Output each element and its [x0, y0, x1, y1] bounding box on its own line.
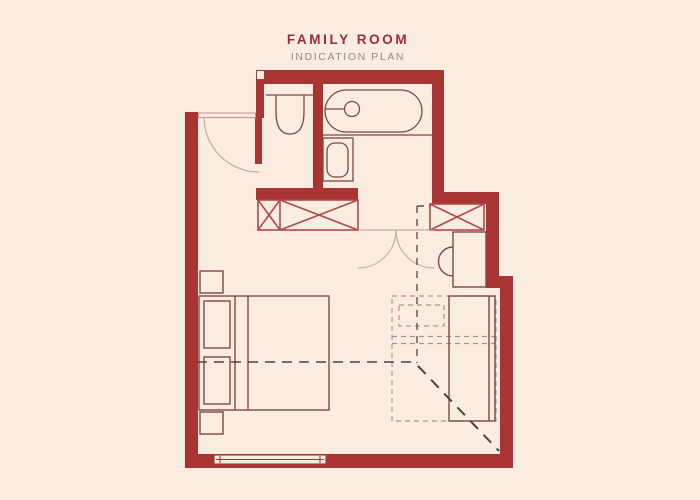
wc-west-wall: [256, 84, 264, 118]
walls: [185, 70, 513, 468]
right-wall-middle: [486, 192, 499, 288]
wardrobe-left: [258, 200, 358, 230]
window: [214, 455, 326, 464]
step-wall-upper: [432, 192, 495, 204]
sofa-bed: [449, 296, 495, 421]
pillow-top: [204, 301, 230, 348]
entry-door: [199, 113, 263, 172]
wardrobe-right: [430, 204, 484, 230]
wc-room-fixtures: [266, 95, 313, 134]
wardrobe-left-outline: [258, 200, 358, 230]
entry-door-leaf: [255, 118, 262, 164]
bed-frame: [199, 296, 329, 410]
top-wall-notch: [257, 71, 264, 79]
nightstand-bottom: [200, 412, 223, 434]
floor-plan-canvas: FAMILY ROOM INDICATION PLAN: [0, 0, 700, 500]
desk-chair-icon: [439, 247, 454, 276]
right-wall-upper: [432, 70, 444, 204]
wc-east-wall: [313, 84, 323, 190]
desk: [453, 232, 486, 287]
double-door-right-arc: [396, 230, 434, 268]
top-wall: [256, 70, 444, 84]
wardrobe-right-x: [430, 204, 484, 230]
double-door-left-arc: [358, 230, 396, 268]
toilet-icon: [276, 95, 304, 134]
bathtub-drain-icon: [345, 102, 360, 117]
double-doors: [358, 230, 434, 268]
wardrobe-left-x-large: [280, 200, 358, 230]
foldout-pillow-dashed: [399, 305, 444, 326]
bathtub-room-fixtures: [323, 90, 432, 181]
pillow-bottom: [204, 357, 230, 404]
sofa-bed-group: [392, 296, 496, 421]
right-wall-lower: [500, 276, 513, 468]
foldout-direction-diagonal: [418, 366, 499, 451]
bathroom-south-wall: [256, 188, 358, 200]
wardrobe-left-x-small: [258, 200, 280, 230]
bathtub-icon: [325, 90, 422, 132]
entry-door-lintel: [199, 113, 256, 118]
desk-area: [439, 232, 487, 287]
floor-plan-drawing: [0, 0, 700, 500]
left-wall: [185, 112, 198, 468]
nightstand-top: [200, 271, 223, 293]
entry-door-swing-arc: [204, 117, 259, 172]
reference-lines: [197, 206, 499, 451]
sink-icon: [327, 143, 348, 177]
bed-group: [199, 271, 329, 434]
